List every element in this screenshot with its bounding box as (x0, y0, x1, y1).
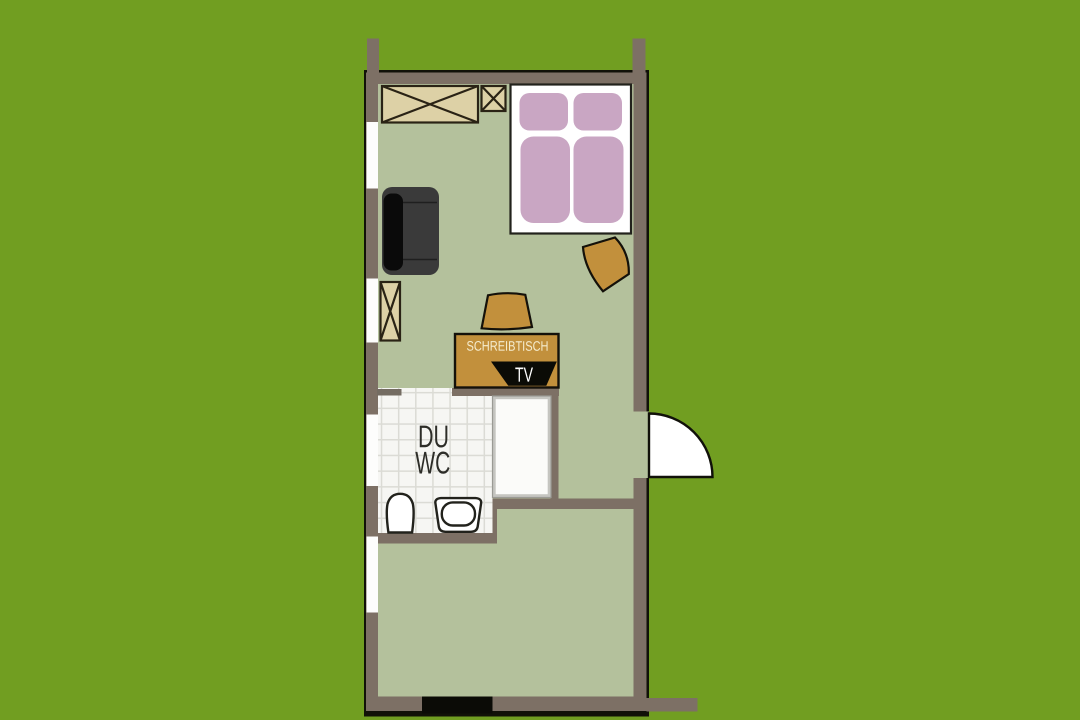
svg-text:WC: WC (415, 444, 450, 480)
svg-text:TV: TV (515, 364, 533, 387)
svg-text:SCHREIBTISCH: SCHREIBTISCH (466, 339, 548, 354)
